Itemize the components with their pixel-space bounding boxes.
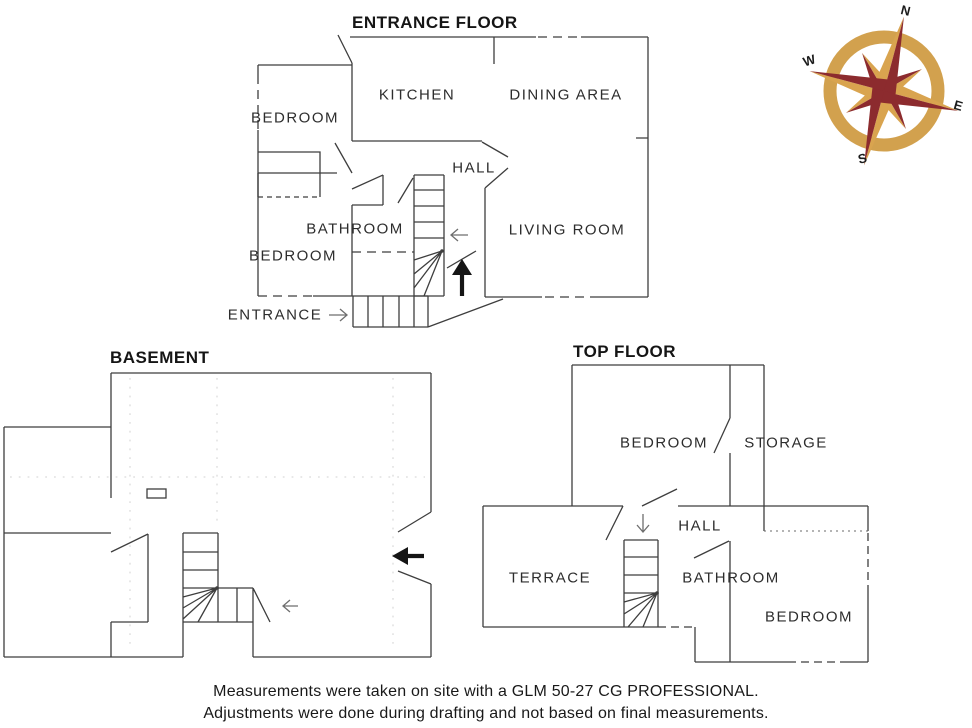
tf-bedroom-top-label: BEDROOM	[620, 435, 708, 452]
ef-living-room-label: LIVING ROOM	[509, 222, 626, 239]
basement-stairs	[183, 533, 219, 622]
entrance-floor-walls	[258, 35, 648, 327]
entrance-door-arrow	[329, 309, 347, 321]
entrance-floor-plan	[258, 35, 648, 327]
measurement-note-line2: Adjustments were done during drafting an…	[0, 703, 972, 725]
ef-hall-label: HALL	[452, 160, 496, 177]
hall-stair-arrow	[451, 229, 468, 241]
floorplan-canvas: ENTRANCE FLOOR BASEMENT TOP FLOOR BEDROO…	[0, 0, 972, 728]
tf-bedroom-bottom-label: BEDROOM	[765, 609, 853, 626]
entrance-floor-stairs	[414, 175, 444, 296]
ef-dining-area-label: DINING AREA	[509, 87, 622, 104]
ef-kitchen-label: KITCHEN	[379, 87, 455, 104]
basement-title: BASEMENT	[110, 348, 209, 368]
ef-bedroom-top-label: BEDROOM	[251, 110, 339, 127]
top-floor-stairs	[624, 540, 659, 627]
top-floor-dashed-walls	[658, 533, 868, 662]
basement-plan	[4, 373, 431, 657]
ef-bedroom-bottom-label: BEDROOM	[249, 248, 337, 265]
basement-stair-arrow	[283, 600, 298, 612]
tf-terrace-label: TERRACE	[509, 570, 591, 587]
entrance-steps	[353, 296, 428, 327]
top-floor-title: TOP FLOOR	[573, 342, 676, 362]
wardrobe	[258, 152, 320, 197]
basement-window	[147, 489, 166, 498]
measurement-notes: Measurements were taken on site with a G…	[0, 681, 972, 725]
basement-left-arrow	[392, 547, 424, 565]
tf-hall-label: HALL	[678, 518, 722, 535]
ef-entrance-label: ENTRANCE	[228, 307, 323, 324]
entrance-floor-up-arrow	[452, 259, 472, 296]
ef-bathroom-label: BATHROOM	[306, 221, 404, 238]
compass-star-dark	[790, 0, 972, 185]
entrance-floor-title: ENTRANCE FLOOR	[352, 13, 518, 33]
direction-arrows	[283, 229, 649, 612]
basement-landing	[218, 588, 270, 622]
top-floor-down-arrow	[637, 514, 649, 532]
measurement-note-line1: Measurements were taken on site with a G…	[0, 681, 972, 703]
compass-rose	[790, 0, 972, 185]
tf-storage-label: STORAGE	[744, 435, 828, 452]
tf-bathroom-label: BATHROOM	[682, 570, 780, 587]
